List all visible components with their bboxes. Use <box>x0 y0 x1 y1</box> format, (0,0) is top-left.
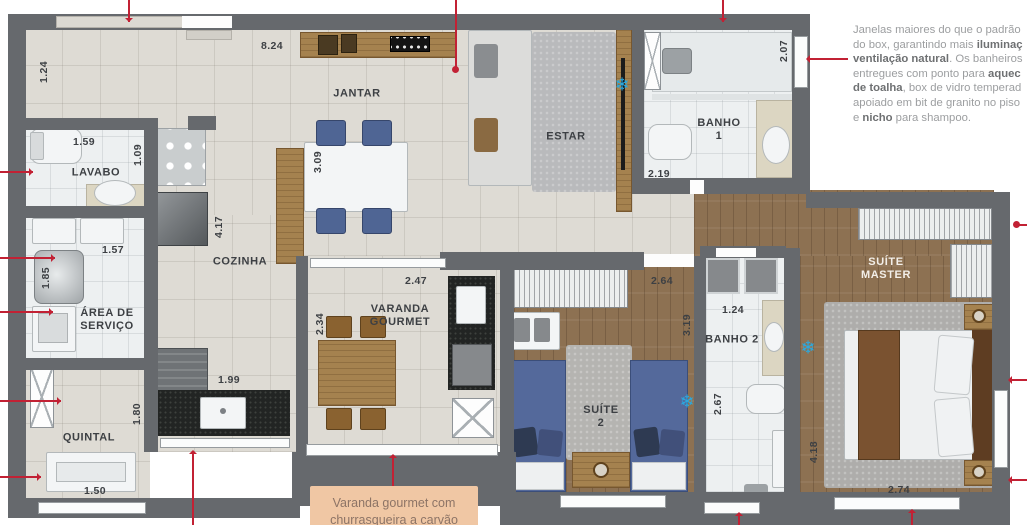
grill-sink <box>456 286 486 324</box>
wall <box>8 14 26 518</box>
buffet-cabinet <box>276 148 304 264</box>
faucet-icon <box>220 408 226 414</box>
callout-line <box>808 58 848 60</box>
callout-arrow <box>49 308 57 316</box>
suite2-door-opening <box>644 254 694 267</box>
callout-line <box>1010 479 1027 481</box>
callout-dot <box>1013 221 1020 228</box>
callout-arrow <box>735 508 743 516</box>
room-label-banho1: BANHO 1 <box>697 117 740 143</box>
callout-dot <box>452 66 459 73</box>
dim-label: 2.19 <box>648 168 670 180</box>
bench-knob-icon <box>593 462 609 478</box>
dim-label: 1.09 <box>132 144 144 166</box>
wall <box>784 248 800 510</box>
room-label-area-servico: ÁREA DE SERVIÇO <box>80 307 134 333</box>
callout-arrow <box>908 505 916 513</box>
callout-line <box>392 456 394 487</box>
callout-line <box>0 257 55 259</box>
room-label-varanda: VARANDA GOURMET <box>370 303 430 329</box>
dim-label: 1.85 <box>40 267 52 289</box>
bed-pillow <box>633 426 661 457</box>
dim-label: 8.24 <box>261 40 283 52</box>
callout-line <box>1010 379 1027 381</box>
dim-label: 4.18 <box>808 441 820 463</box>
shaft-panel <box>30 366 54 428</box>
dim-label: 1.50 <box>84 485 106 497</box>
sofa-cushion <box>474 118 498 152</box>
master-side-window <box>994 390 1008 468</box>
master-wardrobe-side <box>950 244 994 298</box>
counter-sink-icon <box>318 35 338 55</box>
banho2-shower-mat <box>744 258 778 294</box>
dim-label: 1.24 <box>38 61 50 83</box>
sofa-cushion <box>474 44 498 78</box>
banho2-shower-mat <box>706 258 740 294</box>
callout-arrow <box>189 446 197 454</box>
varanda-window-sill <box>306 444 498 456</box>
dining-chair <box>316 208 346 234</box>
laundry-sink-basin <box>38 313 68 343</box>
dim-label: 2.34 <box>314 313 326 335</box>
callout-line <box>911 511 913 525</box>
suite2-table-pad <box>534 318 550 342</box>
floor-corridor <box>632 194 694 256</box>
dim-label: 2.07 <box>778 40 790 62</box>
banho2-toilet <box>746 384 786 414</box>
banho1-door-opening <box>690 180 704 194</box>
dim-label: 1.24 <box>722 304 744 316</box>
bed-pillow <box>934 335 975 396</box>
varanda-door-sill <box>310 258 446 268</box>
nightstand-lamp-icon <box>972 309 986 323</box>
room-label-estar: ESTAR <box>546 130 585 143</box>
callout-arrow <box>57 397 65 405</box>
bed-runner <box>858 330 900 460</box>
banho2-door-opening <box>716 248 756 257</box>
lavabo-sink <box>94 180 136 206</box>
grill-icon <box>452 344 492 386</box>
callout-arrow <box>1004 476 1012 484</box>
suite2-table-pad <box>514 318 530 342</box>
callout-line <box>0 400 61 402</box>
wall <box>24 206 158 218</box>
annotation-line: ventilação natural. Os banheiros <box>853 52 1027 67</box>
varanda-chair <box>326 316 352 338</box>
annotation-line: de toalha, box de vidro temperad <box>853 81 1027 96</box>
banho1-toilet <box>648 124 692 160</box>
master-window <box>834 497 960 510</box>
bed-sheet <box>510 462 564 490</box>
callout-arrow <box>802 55 810 63</box>
banho1-sink <box>762 126 790 164</box>
callout-arrow <box>51 254 59 262</box>
callout-arrow <box>1004 376 1012 384</box>
callout-arrow <box>29 168 37 176</box>
callout-arrow <box>125 18 133 26</box>
bed-pillow <box>934 397 975 458</box>
toilet-tank <box>30 132 44 160</box>
counter-sink2-icon <box>341 34 357 53</box>
master-wardrobe-top <box>858 208 992 240</box>
annotation-line: e nicho para shampoo. <box>853 111 1027 126</box>
annotation-line: entregues com ponto para aquec <box>853 67 1027 82</box>
dining-chair <box>362 208 392 234</box>
caption-line: churrasqueira a carvão <box>310 512 478 525</box>
bed-pillow <box>659 429 686 457</box>
callout-line <box>0 476 41 478</box>
dining-chair <box>362 120 392 146</box>
wall <box>188 116 216 130</box>
nightstand-lamp-icon <box>972 465 986 479</box>
dim-label: 2.64 <box>651 275 673 287</box>
annotation-line: apoiado em bit de granito no piso <box>853 96 1027 111</box>
callout-line <box>192 452 194 525</box>
room-label-jantar: JANTAR <box>333 87 380 100</box>
caption-line: Varanda gourmet com <box>310 495 478 512</box>
bed-headboard <box>972 330 994 460</box>
banho2-window <box>704 502 760 514</box>
room-label-banho2: BANHO 2 <box>705 333 759 346</box>
suite2-window <box>560 495 666 508</box>
dryer-icon <box>80 218 124 244</box>
bed-pillow <box>537 429 564 457</box>
dim-label: 4.17 <box>213 216 225 238</box>
bed-sheet <box>632 462 686 490</box>
dim-label: 2.47 <box>405 275 427 287</box>
kitchen-window-sill <box>160 438 290 448</box>
callout-arrow <box>389 450 397 458</box>
dim-label: 2.67 <box>712 393 724 415</box>
wall <box>144 118 158 452</box>
washer-icon <box>32 218 76 244</box>
wall <box>694 256 706 506</box>
callout-arrow <box>719 18 727 26</box>
dim-label: 1.80 <box>131 403 143 425</box>
dim-label: 3.19 <box>681 314 693 336</box>
entry-window <box>56 16 184 28</box>
wall <box>24 358 152 370</box>
fridge-icon <box>154 192 208 246</box>
callout-line <box>0 311 53 313</box>
wall <box>296 256 308 452</box>
wall <box>806 192 1008 208</box>
caption-varanda-gourmet: Varanda gourmet com churrasqueira a carv… <box>310 486 478 525</box>
varanda-chair <box>326 408 352 430</box>
banho2-sink <box>764 322 784 352</box>
wall <box>632 178 792 194</box>
annotation-line: Janelas maiores do que o padrão <box>853 23 1027 38</box>
callout-line <box>455 0 457 68</box>
estar-rug <box>532 32 616 192</box>
room-label-cozinha: COZINHA <box>213 255 267 268</box>
stove-icon <box>152 128 206 186</box>
dim-label: 3.09 <box>312 151 324 173</box>
dining-chair <box>316 120 346 146</box>
dim-label: 1.59 <box>73 136 95 148</box>
room-label-suite-master: SUÍTE MASTER <box>861 256 911 282</box>
floor-plan: JANTAR ESTAR LAVABO COZINHA ÁREA DE SERV… <box>0 0 1027 525</box>
dim-label: 1.57 <box>102 244 124 256</box>
ac-snowflake-icon: ❄ <box>614 75 629 96</box>
wall <box>440 252 644 270</box>
room-label-suite2: SUÍTE 2 <box>583 404 618 430</box>
entry-door-opening <box>182 16 232 28</box>
varanda-table <box>318 340 396 406</box>
quintal-bench-seat <box>56 462 126 482</box>
wall <box>632 14 644 192</box>
room-label-lavabo: LAVABO <box>72 166 120 179</box>
dim-label: 1.99 <box>218 374 240 386</box>
varanda-shaft-panel <box>452 398 494 438</box>
wall <box>24 118 156 130</box>
annotation-line: do box, garantindo mais iluminaç <box>853 38 1027 53</box>
banho1-shower-door <box>644 32 661 90</box>
varanda-chair <box>360 408 386 430</box>
ac-snowflake-icon: ❄ <box>679 392 694 413</box>
quintal-window <box>38 502 146 514</box>
callout-arrow <box>37 473 45 481</box>
entry-mat <box>186 30 232 40</box>
annotation-text: Janelas maiores do que o padrão do box, … <box>853 23 1027 125</box>
dim-label: 2.74 <box>888 484 910 496</box>
ac-snowflake-icon: ❄ <box>800 338 815 359</box>
room-label-quintal: QUINTAL <box>63 431 115 444</box>
cooktop-icon <box>390 36 430 52</box>
suite2-rug <box>566 345 632 460</box>
wall <box>500 256 514 506</box>
shower-head-icon <box>662 48 692 74</box>
